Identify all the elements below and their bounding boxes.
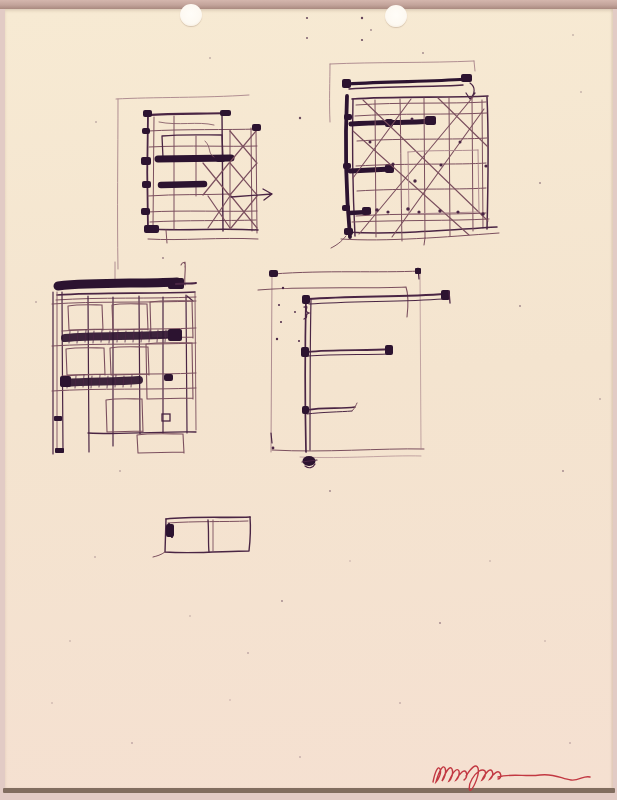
hole-punch-right: [385, 5, 407, 27]
paper-bottom-edge-shadow: [3, 788, 615, 793]
hole-punch-left: [180, 4, 202, 26]
framed-artwork: [0, 0, 617, 800]
mat-top-edge: [0, 0, 617, 9]
paper-sheet: [5, 9, 613, 788]
